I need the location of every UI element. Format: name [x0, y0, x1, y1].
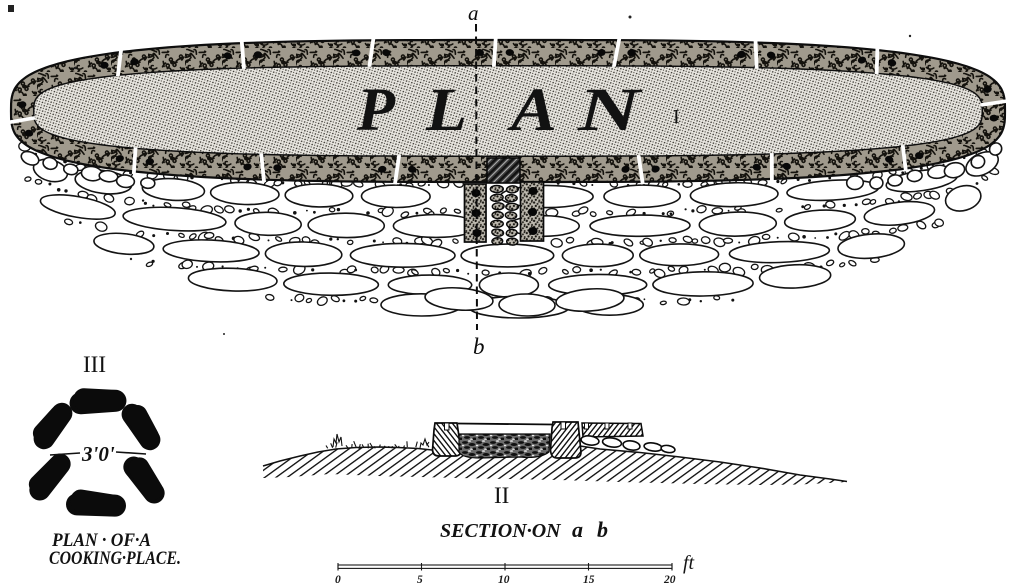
svg-text:15: 15	[583, 574, 595, 586]
svg-text:b: b	[473, 334, 485, 359]
svg-text:a: a	[572, 517, 583, 542]
svg-text:0: 0	[335, 574, 341, 586]
svg-text:a: a	[468, 1, 479, 25]
svg-text:20: 20	[663, 574, 676, 586]
svg-text:III: III	[83, 352, 106, 377]
svg-text:COOKING·PLACE.: COOKING·PLACE.	[49, 548, 181, 569]
svg-text:10: 10	[498, 574, 510, 586]
svg-text:b: b	[597, 517, 608, 542]
svg-text:3'0': 3'0'	[81, 442, 115, 466]
svg-text:P: P	[356, 77, 396, 144]
svg-text:5: 5	[417, 574, 423, 586]
svg-text:II: II	[494, 483, 509, 508]
svg-text:N: N	[577, 77, 643, 144]
svg-text:I: I	[673, 106, 680, 128]
svg-text:L: L	[425, 77, 467, 144]
svg-text:A: A	[506, 77, 557, 144]
svg-text:ft: ft	[683, 552, 695, 574]
svg-text:SECTION·ON: SECTION·ON	[440, 520, 562, 542]
